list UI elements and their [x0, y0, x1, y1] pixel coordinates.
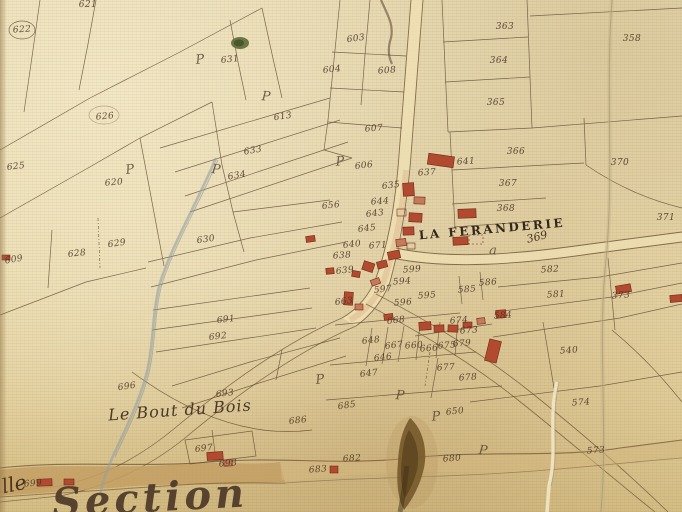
building [434, 325, 444, 332]
land-use-symbol: a [489, 244, 497, 259]
building [496, 310, 507, 319]
building [448, 325, 458, 332]
building [355, 304, 363, 310]
building [362, 261, 375, 273]
building [485, 339, 502, 363]
building [224, 460, 232, 466]
building [427, 153, 454, 168]
building [477, 318, 486, 325]
land-use-symbol: P [395, 388, 405, 404]
building [419, 322, 432, 331]
building [670, 294, 682, 302]
land-use-symbol: P [335, 154, 345, 170]
building [306, 235, 316, 242]
building [403, 183, 415, 197]
land-use-symbol: P [195, 52, 205, 68]
land-use-symbol: P [431, 409, 441, 425]
building [409, 213, 422, 223]
building [615, 284, 631, 294]
building [330, 466, 338, 473]
building [407, 243, 415, 249]
building [403, 227, 414, 235]
roads [0, 0, 682, 512]
sheet-edge-shadow [0, 0, 7, 512]
building [384, 313, 394, 320]
building [396, 238, 407, 246]
building [414, 197, 425, 204]
building [463, 322, 472, 328]
land-use-symbol: P [125, 162, 136, 178]
cadastral-map: 6226213633643653586316036046086266136073… [0, 0, 682, 512]
village-buildings [2, 153, 682, 486]
parcel-boundaries [0, 0, 682, 464]
building [207, 451, 224, 460]
building [344, 292, 354, 306]
land-use-symbol: P [211, 162, 221, 178]
building [352, 270, 361, 277]
building [458, 209, 476, 219]
map-linework [0, 0, 682, 512]
land-use-symbol: P [315, 372, 325, 388]
land-use-symbol: P [478, 443, 488, 459]
building [37, 479, 52, 487]
building [326, 268, 334, 275]
land-use-symbol: P [261, 89, 271, 105]
